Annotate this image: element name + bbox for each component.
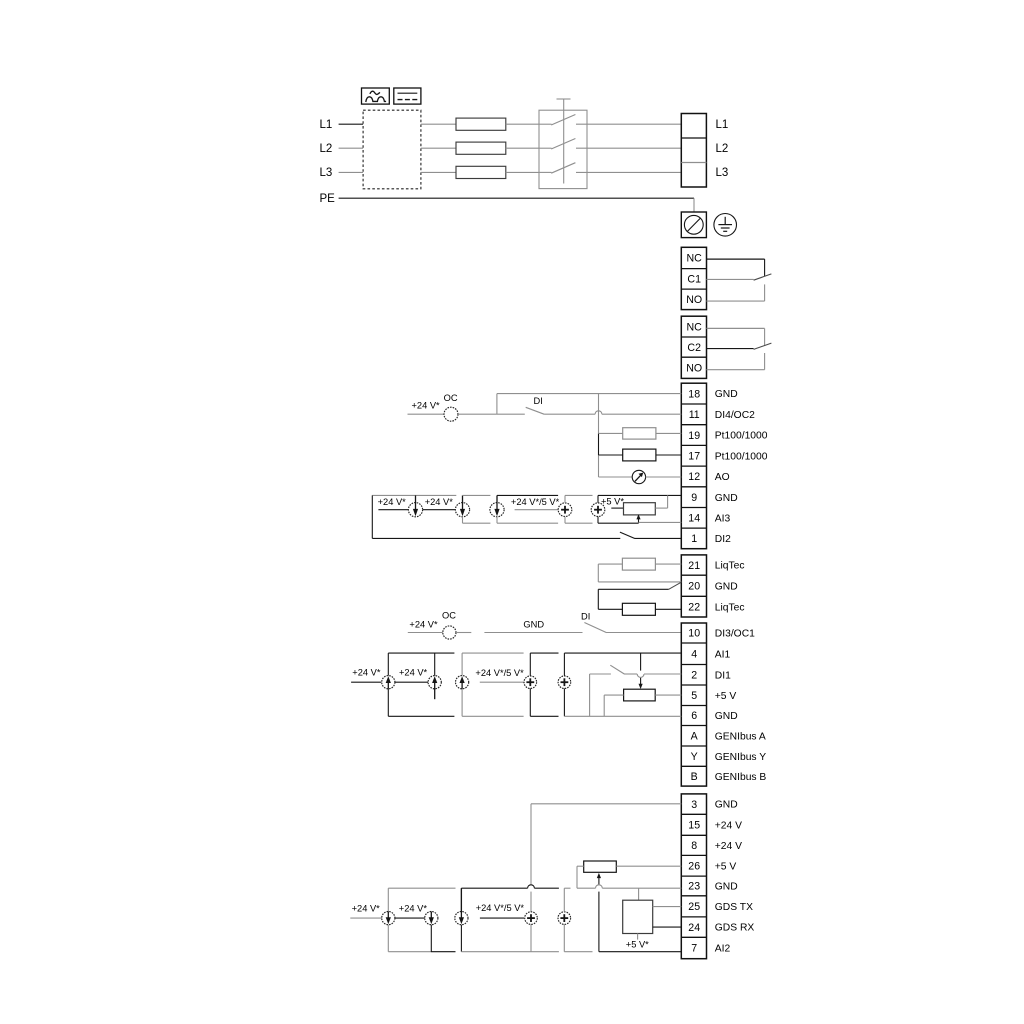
svg-text:+5 V: +5 V (715, 691, 737, 702)
svg-text:5: 5 (691, 690, 697, 702)
svg-text:AI1: AI1 (715, 649, 731, 660)
svg-text:PE: PE (320, 193, 336, 205)
svg-text:12: 12 (688, 471, 700, 483)
svg-text:26: 26 (688, 860, 700, 872)
svg-text:OC: OC (444, 393, 458, 403)
svg-text:19: 19 (688, 430, 700, 442)
svg-text:+24 V*/5 V*: +24 V*/5 V* (476, 903, 525, 913)
svg-text:+24 V*: +24 V* (352, 667, 381, 677)
svg-text:DI: DI (581, 611, 590, 621)
svg-text:+24 V*: +24 V* (352, 904, 381, 914)
svg-text:+24 V*: +24 V* (399, 904, 428, 914)
svg-text:Pt100/1000: Pt100/1000 (715, 431, 768, 442)
svg-text:18: 18 (688, 388, 700, 400)
svg-text:DI4/OC2: DI4/OC2 (715, 410, 755, 421)
svg-text:14: 14 (688, 513, 700, 525)
svg-text:GDS TX: GDS TX (715, 902, 753, 913)
svg-text:L3: L3 (320, 167, 333, 179)
svg-text:C2: C2 (687, 342, 701, 354)
svg-text:6: 6 (691, 710, 697, 722)
svg-text:+5 V*: +5 V* (626, 940, 649, 950)
svg-text:1: 1 (691, 533, 697, 545)
svg-text:DI: DI (534, 396, 543, 406)
svg-text:11: 11 (689, 409, 700, 421)
svg-text:22: 22 (688, 601, 700, 613)
svg-text:23: 23 (688, 881, 700, 893)
svg-text:GENIbus B: GENIbus B (715, 772, 767, 783)
svg-text:LiqTec: LiqTec (715, 602, 745, 613)
svg-text:15: 15 (688, 820, 700, 832)
svg-text:+24 V*: +24 V* (399, 667, 428, 677)
svg-text:+24 V*: +24 V* (425, 497, 454, 507)
svg-text:DI3/OC1: DI3/OC1 (715, 629, 755, 640)
svg-text:9: 9 (691, 492, 697, 504)
svg-text:GND: GND (715, 389, 738, 400)
svg-text:A: A (691, 730, 699, 742)
svg-text:GENIbus Y: GENIbus Y (715, 752, 766, 763)
svg-text:L2: L2 (320, 143, 333, 155)
svg-text:Y: Y (691, 751, 698, 763)
svg-text:GND: GND (715, 800, 738, 811)
svg-text:GDS RX: GDS RX (715, 923, 755, 934)
svg-text:L1: L1 (716, 119, 729, 131)
svg-text:AI3: AI3 (715, 513, 731, 524)
svg-text:AI2: AI2 (715, 944, 731, 955)
svg-text:NC: NC (687, 321, 703, 333)
svg-text:NC: NC (687, 253, 703, 265)
svg-text:GND: GND (715, 882, 738, 893)
svg-text:+24 V*/5 V*: +24 V*/5 V* (511, 497, 560, 507)
svg-text:OC: OC (442, 611, 456, 621)
svg-text:2: 2 (691, 669, 697, 681)
svg-text:GND: GND (715, 711, 738, 722)
svg-text:NO: NO (686, 363, 702, 375)
svg-text:B: B (691, 771, 698, 783)
svg-text:GND: GND (715, 581, 738, 592)
svg-text:4: 4 (691, 648, 697, 660)
svg-text:8: 8 (691, 840, 697, 852)
svg-text:10: 10 (688, 628, 700, 640)
svg-text:20: 20 (688, 580, 700, 592)
svg-text:+24 V*: +24 V* (409, 620, 438, 630)
svg-text:DI2: DI2 (715, 534, 731, 545)
svg-text:L2: L2 (716, 143, 729, 155)
svg-text:GENIbus A: GENIbus A (715, 731, 766, 742)
svg-text:+5 V*: +5 V* (601, 497, 624, 507)
svg-text:L1: L1 (320, 119, 333, 131)
svg-text:17: 17 (688, 450, 700, 462)
svg-text:L3: L3 (716, 167, 729, 179)
svg-text:GND: GND (715, 493, 738, 504)
svg-text:+24 V: +24 V (715, 841, 742, 852)
svg-text:NO: NO (686, 294, 702, 306)
svg-text:7: 7 (691, 943, 697, 955)
svg-text:25: 25 (688, 901, 700, 913)
svg-text:+5 V: +5 V (715, 861, 737, 872)
svg-text:AO: AO (715, 472, 730, 483)
svg-text:24: 24 (688, 922, 700, 934)
svg-text:21: 21 (688, 560, 700, 572)
svg-text:C1: C1 (687, 274, 701, 286)
svg-text:GND: GND (523, 620, 544, 630)
svg-text:+24 V*: +24 V* (378, 497, 407, 507)
svg-text:LiqTec: LiqTec (715, 561, 745, 572)
svg-text:+24 V: +24 V (715, 820, 742, 831)
svg-text:+24 V*: +24 V* (412, 400, 441, 410)
svg-text:Pt100/1000: Pt100/1000 (715, 451, 768, 462)
svg-text:+24 V*/5 V*: +24 V*/5 V* (475, 668, 524, 678)
svg-text:DI1: DI1 (715, 670, 731, 681)
svg-text:3: 3 (691, 799, 697, 811)
